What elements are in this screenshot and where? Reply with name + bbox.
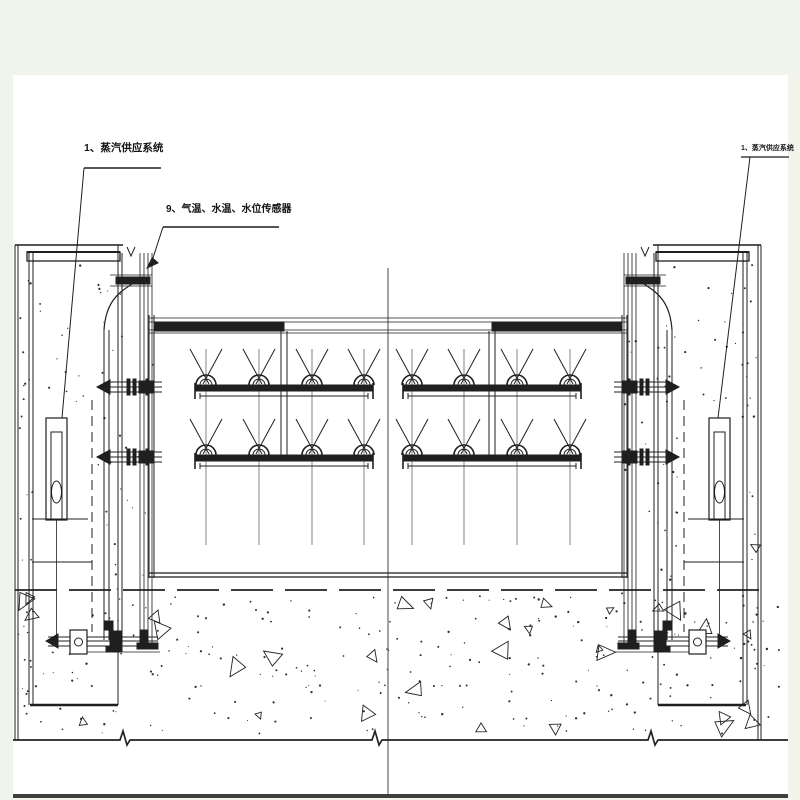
steam-inlet	[116, 277, 150, 284]
cad-drawing-stage: 1、蒸汽供应系统 9、气温、水温、水位传感器 1、蒸汽供应系统	[0, 0, 800, 800]
slot-fitting-row1	[97, 379, 162, 395]
steam-manifold	[154, 322, 284, 331]
label-steam-supply-left: 1、蒸汽供应系统	[84, 141, 164, 154]
slot-fitting-row2	[97, 449, 162, 465]
blueprint-svg: 1、蒸汽供应系统 9、气温、水温、水位传感器 1、蒸汽供应系统	[0, 0, 800, 800]
bottom-frame-edge	[13, 794, 788, 798]
label-steam-supply-right: 1、蒸汽供应系统	[741, 143, 794, 152]
label-sensors: 9、气温、水温、水位传感器	[166, 202, 293, 215]
